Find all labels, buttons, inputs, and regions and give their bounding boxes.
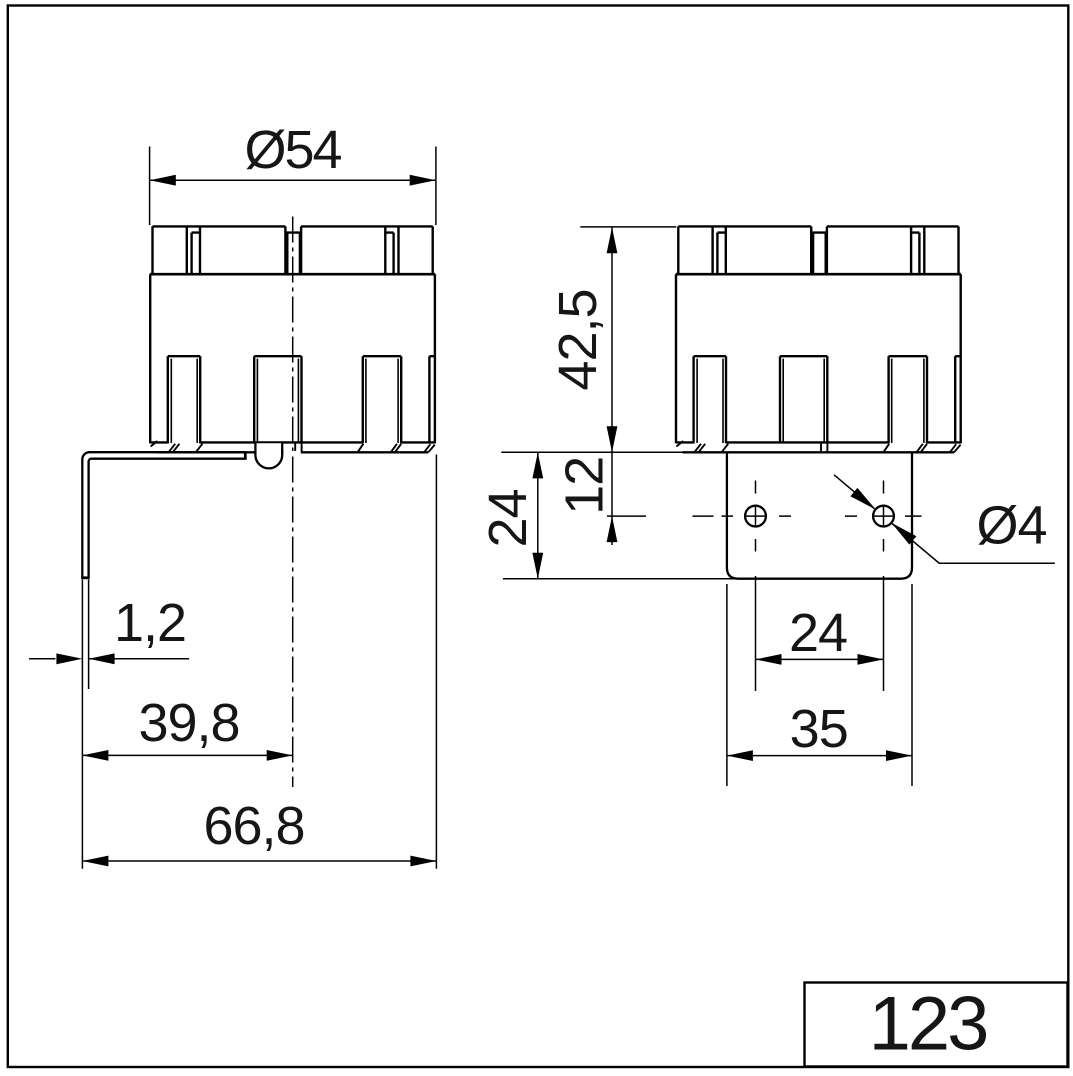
svg-text:1,2: 1,2: [114, 593, 186, 653]
svg-text:24: 24: [789, 603, 847, 663]
svg-text:66,8: 66,8: [203, 796, 304, 856]
svg-text:42,5: 42,5: [548, 289, 608, 390]
svg-text:123: 123: [869, 982, 987, 1067]
svg-text:Ø4: Ø4: [976, 496, 1046, 556]
svg-text:24: 24: [478, 489, 538, 547]
svg-text:35: 35: [790, 699, 848, 759]
svg-text:12: 12: [555, 457, 615, 515]
svg-text:Ø54: Ø54: [244, 120, 341, 180]
svg-text:39,8: 39,8: [138, 693, 239, 753]
